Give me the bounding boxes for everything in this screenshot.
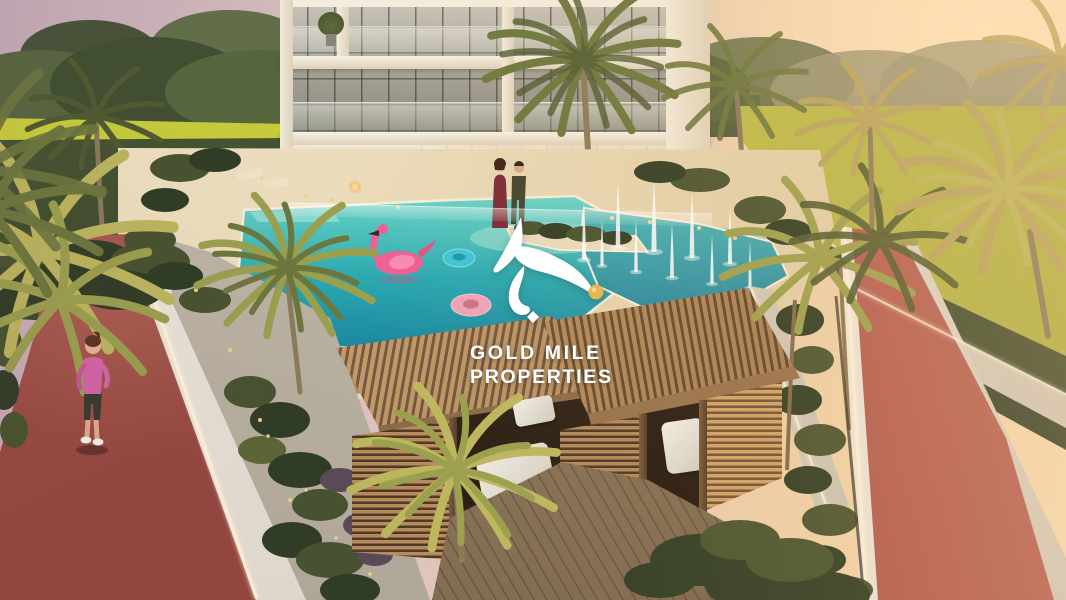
watermark-brand-name: GOLD MILE — [470, 342, 602, 365]
logo-gold-dot — [589, 285, 604, 300]
palm-by-cabana — [351, 371, 558, 564]
logo-diamond-dot — [527, 311, 539, 323]
jogger-on-track — [70, 328, 118, 458]
palm-far-right-large — [898, 0, 1066, 336]
palm-fronds-right-hedge — [723, 156, 975, 330]
calligraphy-swoosh-icon — [460, 200, 680, 350]
logo-gold-dot-highlight — [592, 288, 597, 293]
property-aerial-render: GOLD MILE PROPERTIES — [0, 0, 1066, 600]
palm-poolside — [197, 187, 375, 392]
jogger-figure — [76, 332, 108, 455]
watermark-brand-word: PROPERTIES — [470, 366, 613, 389]
logo-mark-strokes — [494, 217, 594, 323]
shrub-mass-bottom-right — [624, 520, 870, 600]
